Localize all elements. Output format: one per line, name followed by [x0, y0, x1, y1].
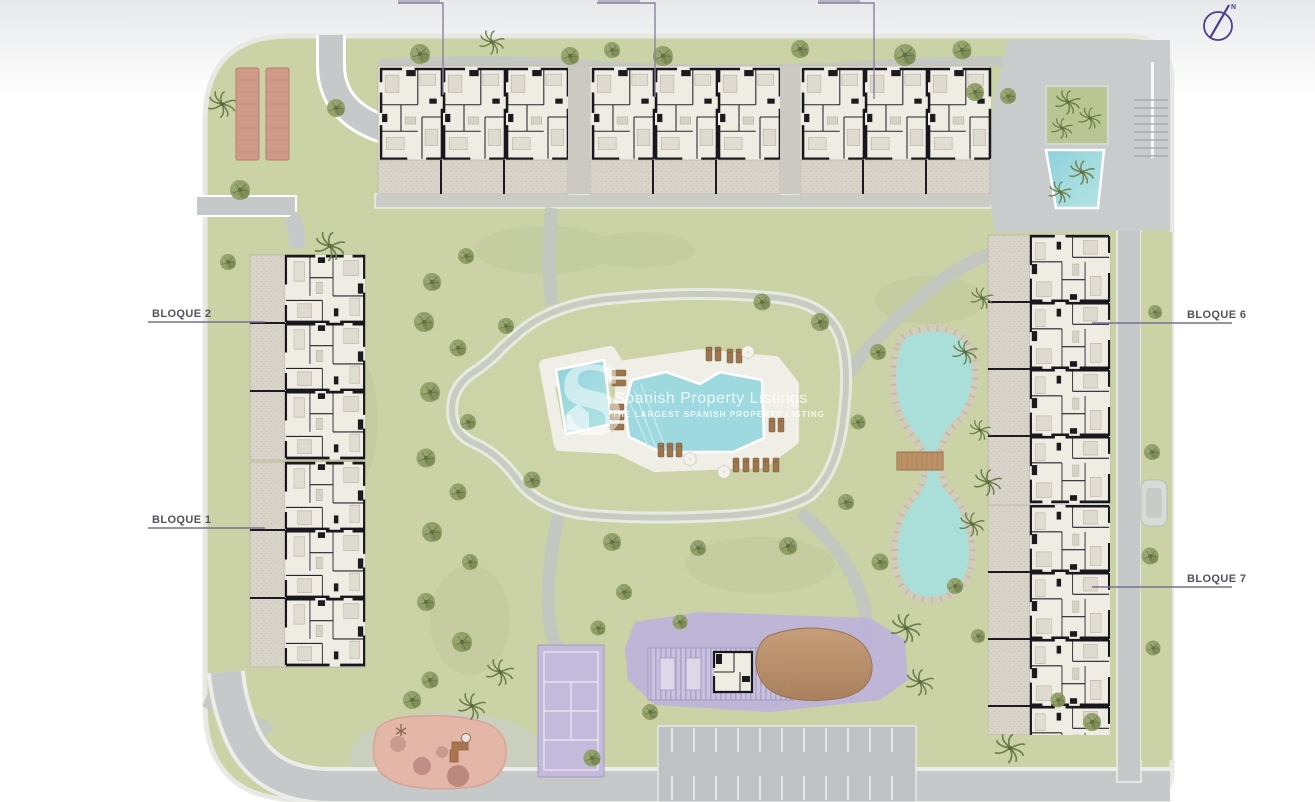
- tree-icon: [953, 41, 972, 60]
- tree-icon: [971, 629, 985, 643]
- pergola-table: [686, 658, 701, 690]
- tree-icon: [498, 318, 514, 334]
- tree-icon: [591, 621, 606, 636]
- lounger-icon: [743, 458, 749, 472]
- tree-icon: [791, 40, 809, 58]
- terrace-strip: [988, 505, 1030, 735]
- road-stub-left: [196, 196, 296, 216]
- tree-icon: [1142, 548, 1159, 565]
- tree-icon: [653, 46, 673, 66]
- building-bloque-2: [250, 255, 365, 460]
- lounger-icon: [667, 443, 673, 457]
- tree-icon: [423, 273, 441, 291]
- tree-icon: [754, 294, 771, 311]
- building-bloque-6: [988, 235, 1110, 505]
- terrace-strip: [590, 160, 780, 194]
- tree-icon: [872, 554, 889, 571]
- road-marking: [1151, 62, 1154, 158]
- umbrella-icon: [684, 452, 696, 466]
- tree-icon: [417, 449, 436, 468]
- tree-icon: [420, 382, 440, 402]
- building-bloque-7: [988, 505, 1110, 773]
- label-bloque-6: BLOQUE 6: [1187, 309, 1246, 321]
- tree-icon: [230, 180, 250, 200]
- tree-icon: [327, 99, 345, 117]
- building-bloque-1: [250, 462, 365, 667]
- tree-icon: [1083, 713, 1101, 731]
- terrace-strip: [250, 255, 285, 460]
- wood-deck: [756, 628, 872, 701]
- lounger-icon: [763, 458, 769, 472]
- label-bloque-1: BLOQUE 1: [152, 514, 211, 526]
- tree-icon: [450, 484, 467, 501]
- lake-bridge: [897, 452, 943, 470]
- tree-icon: [403, 691, 421, 709]
- playground-circle: [413, 757, 431, 775]
- tree-icon: [1000, 88, 1016, 104]
- building-top-3: [800, 66, 991, 194]
- lounger-icon: [753, 458, 759, 472]
- communal-deck-zone: [625, 612, 908, 712]
- tree-icon: [1051, 693, 1066, 708]
- tree-icon: [450, 340, 467, 357]
- lounger-icon: [778, 418, 784, 432]
- umbrella-icon: [742, 345, 754, 359]
- building-top-2: [590, 66, 781, 194]
- tree-icon: [410, 44, 430, 64]
- bench-inner: [1146, 488, 1162, 518]
- tree-icon: [422, 672, 439, 689]
- tree-icon: [811, 313, 829, 331]
- lounger-icon: [727, 349, 733, 363]
- tree-icon: [673, 615, 688, 630]
- tree-icon: [460, 414, 476, 430]
- road-stub-tail: [290, 216, 297, 248]
- building-top-1: [378, 66, 569, 194]
- tree-icon: [603, 533, 621, 551]
- tree-icon: [838, 494, 854, 510]
- tree-icon: [604, 42, 620, 58]
- watermark-subtitle: THE LARGEST SPANISH PROPERTY LISTING: [612, 410, 825, 419]
- lounger-icon: [733, 458, 739, 472]
- tree-icon: [458, 248, 474, 264]
- tree-icon: [414, 312, 434, 332]
- site-plan-image: BLOQUE 2 BLOQUE 1 BLOQUE 6 BLOQUE 7 N S …: [0, 0, 1315, 802]
- pergola-table: [660, 658, 675, 690]
- building-gap-paving: [568, 66, 590, 194]
- watermark-title: Spanish Property Listings: [614, 390, 808, 407]
- walkway-top-buildings: [375, 194, 991, 208]
- clubhouse-floorplan: [714, 652, 752, 692]
- playground: [374, 716, 507, 789]
- tree-icon: [690, 540, 706, 556]
- tree-icon: [452, 632, 472, 652]
- tree-icon: [947, 578, 963, 594]
- tree-icon: [966, 83, 984, 101]
- tree-icon: [417, 593, 435, 611]
- tree-icon: [1146, 641, 1161, 656]
- lounger-icon: [715, 347, 721, 361]
- lounger-icon: [773, 458, 779, 472]
- label-bloque-2: BLOQUE 2: [152, 308, 211, 320]
- playground-circle: [436, 746, 448, 758]
- lounger-icon: [676, 443, 682, 457]
- north-label: N: [1231, 4, 1236, 11]
- tree-icon: [616, 584, 632, 600]
- path-to-pool-north: [549, 208, 552, 305]
- tree-icon: [642, 704, 658, 720]
- tree-icon: [524, 472, 541, 489]
- tree-icon: [220, 254, 236, 270]
- tree-icon: [462, 554, 478, 570]
- lounger-icon: [769, 418, 775, 432]
- tree-icon: [779, 537, 797, 555]
- terrace-strip: [800, 160, 990, 194]
- terrace-strip: [250, 462, 285, 667]
- playground-roundabout: [462, 734, 471, 743]
- lounger-icon: [706, 347, 712, 361]
- lounger-icon: [736, 349, 742, 363]
- building-gap-paving: [780, 66, 800, 194]
- playground-circle: [447, 765, 469, 787]
- umbrella-icon: [718, 465, 730, 479]
- tree-icon: [1144, 444, 1160, 460]
- tree-icon: [1148, 305, 1162, 319]
- terrace-strip: [378, 160, 568, 194]
- tree-icon: [584, 750, 601, 767]
- parking-area: [658, 726, 916, 802]
- playground-circle: [390, 736, 406, 752]
- tree-icon: [894, 44, 916, 66]
- plaza-pool: [1046, 150, 1104, 208]
- tree-icon: [870, 344, 886, 360]
- label-bloque-7: BLOQUE 7: [1187, 573, 1246, 585]
- tree-icon: [422, 522, 442, 542]
- tree-icon: [851, 415, 866, 430]
- lounger-icon: [658, 443, 664, 457]
- tree-icon: [561, 47, 579, 65]
